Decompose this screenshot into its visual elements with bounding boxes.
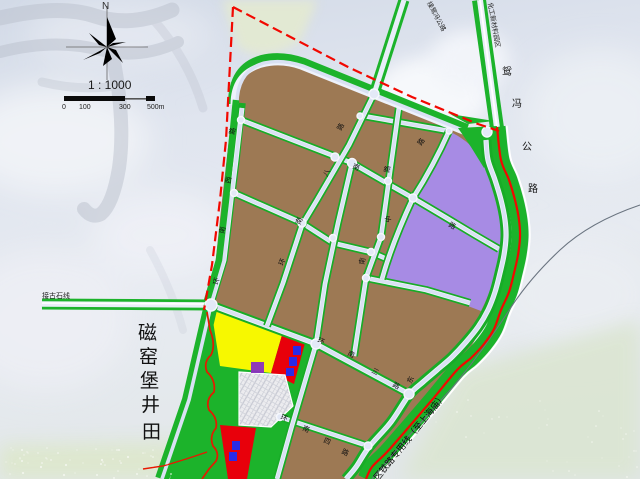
- svg-text:路: 路: [528, 182, 538, 195]
- svg-text:0: 0: [62, 104, 66, 111]
- svg-text:500m: 500m: [147, 104, 165, 111]
- svg-text:公: 公: [522, 142, 532, 153]
- svg-text:冯: 冯: [512, 98, 522, 110]
- svg-text:100: 100: [79, 104, 91, 111]
- svg-text:堡: 堡: [140, 370, 159, 392]
- svg-text:N: N: [102, 1, 109, 12]
- svg-text:磁: 磁: [138, 322, 157, 344]
- svg-text:窑: 窑: [139, 346, 158, 368]
- svg-text:300: 300: [119, 104, 131, 111]
- svg-text:1 : 1000: 1 : 1000: [88, 78, 132, 92]
- svg-text:鸳: 鸳: [502, 65, 512, 78]
- svg-text:田: 田: [142, 422, 161, 443]
- svg-text:接古石线: 接古石线: [42, 291, 70, 300]
- svg-text:井: 井: [141, 394, 160, 416]
